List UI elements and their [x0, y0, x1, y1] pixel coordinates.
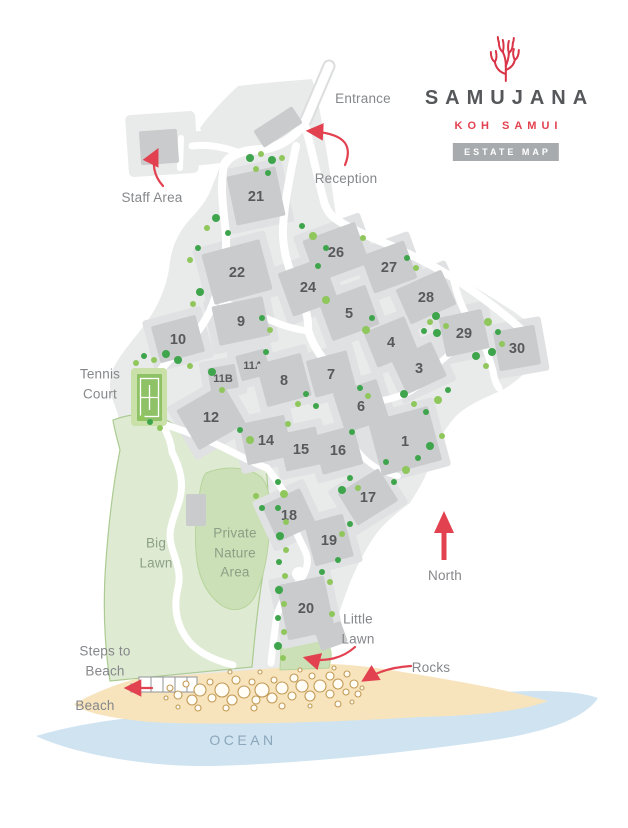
tree-icon — [402, 466, 410, 474]
tree-icon — [383, 459, 389, 465]
villa-number: 16 — [330, 443, 346, 459]
rock-icon — [238, 686, 250, 698]
tree-icon — [276, 532, 284, 540]
tree-icon — [483, 363, 489, 369]
villa-number: 28 — [418, 290, 434, 306]
tree-icon — [280, 655, 286, 661]
tree-icon — [285, 421, 291, 427]
tree-icon — [362, 326, 370, 334]
tree-icon — [263, 349, 269, 355]
rock-icon — [344, 671, 350, 677]
rock-icon — [350, 700, 354, 704]
rock-icon — [223, 705, 229, 711]
tree-icon — [415, 455, 421, 461]
tree-icon — [335, 557, 341, 563]
label-rocks: Rocks — [412, 658, 451, 678]
tree-icon — [276, 559, 282, 565]
tree-icon — [259, 505, 265, 511]
tree-icon — [349, 429, 355, 435]
rock-icon — [195, 705, 201, 711]
label-north: North — [428, 566, 462, 586]
rock-icon — [290, 674, 298, 682]
tree-icon — [246, 154, 254, 162]
tree-icon — [187, 363, 193, 369]
tree-icon — [208, 368, 216, 376]
rock-icon — [176, 705, 180, 709]
rock-icon — [298, 668, 302, 672]
rock-icon — [326, 690, 334, 698]
label-big-lawn: Big Lawn — [136, 533, 176, 572]
rock-icon — [308, 704, 312, 708]
tree-icon — [495, 329, 501, 335]
rock-icon — [360, 686, 364, 690]
tree-icon — [265, 170, 271, 176]
tree-icon — [139, 415, 145, 421]
villa-number: 4 — [387, 335, 395, 351]
tree-icon — [347, 475, 353, 481]
tree-icon — [432, 312, 440, 320]
tree-icon — [445, 387, 451, 393]
tree-icon — [329, 611, 335, 617]
tree-icon — [190, 301, 196, 307]
rock-icon — [314, 680, 326, 692]
rock-icon — [271, 677, 277, 683]
tree-icon — [282, 573, 288, 579]
label-ocean: OCEAN — [209, 730, 276, 750]
tree-icon — [279, 155, 285, 161]
tree-icon — [133, 360, 139, 366]
tree-icon — [147, 419, 153, 425]
tree-icon — [421, 328, 427, 334]
rock-icon — [296, 680, 308, 692]
label-reception: Reception — [315, 169, 378, 189]
tree-icon — [141, 353, 147, 359]
tree-icon — [187, 257, 193, 263]
tree-icon — [404, 255, 410, 261]
rock-icon — [194, 684, 206, 696]
tree-icon — [281, 601, 287, 607]
rock-icon — [355, 691, 361, 697]
label-staff-area: Staff Area — [121, 188, 182, 208]
villa-number: 9 — [237, 314, 245, 330]
tree-icon — [151, 357, 157, 363]
tree-icon — [338, 486, 346, 494]
logo: SAMUJANA KOH SAMUI ESTATE MAP — [418, 34, 594, 161]
villa-number: 21 — [248, 189, 264, 205]
rock-icon — [255, 683, 269, 697]
label-little-lawn: Little Lawn — [336, 609, 380, 648]
tree-icon — [413, 265, 419, 271]
rock-icon — [183, 681, 189, 687]
villa-number: 29 — [456, 326, 472, 342]
villa-number: 15 — [293, 442, 309, 458]
tree-icon — [443, 323, 449, 329]
label-steps-to-beach: Steps to Beach — [74, 641, 136, 680]
tree-icon — [246, 436, 254, 444]
staff-building — [139, 129, 179, 166]
villa-number: 20 — [298, 601, 314, 617]
rock-icon — [227, 695, 237, 705]
tree-icon — [295, 401, 301, 407]
tree-icon — [275, 479, 281, 485]
tree-icon — [391, 479, 397, 485]
tree-icon — [281, 629, 287, 635]
tree-icon — [267, 327, 273, 333]
rock-icon — [309, 673, 315, 679]
tree-icon — [327, 579, 333, 585]
tree-icon — [360, 235, 366, 241]
villa-number: 24 — [300, 280, 316, 296]
villa-number: 26 — [328, 245, 344, 261]
tree-icon — [339, 531, 345, 537]
tree-icon — [439, 433, 445, 439]
rock-icon — [326, 672, 334, 680]
rock-icon — [350, 680, 358, 688]
rock-icon — [276, 682, 288, 694]
tree-icon — [347, 521, 353, 527]
rock-icon — [267, 693, 277, 703]
estate-map-badge: ESTATE MAP — [453, 143, 559, 161]
tree-icon — [196, 288, 204, 296]
tree-icon — [280, 490, 288, 498]
tree-icon — [484, 318, 492, 326]
tree-icon — [157, 425, 163, 431]
tree-icon — [275, 615, 281, 621]
tree-icon — [225, 230, 231, 236]
tree-icon — [411, 401, 417, 407]
north-arrow-head — [434, 511, 454, 533]
tree-icon — [258, 151, 264, 157]
tree-icon — [212, 214, 220, 222]
tree-icon — [322, 296, 330, 304]
rock-icon — [335, 701, 341, 707]
rock-icon — [232, 676, 240, 684]
label-entrance: Entrance — [335, 89, 391, 109]
villa-number: 5 — [345, 306, 353, 322]
rock-icon — [258, 670, 262, 674]
tree-icon — [319, 569, 325, 575]
label-tennis-court: Tennis Court — [75, 364, 125, 403]
villa-number: 1 — [401, 434, 409, 450]
tree-icon — [162, 350, 170, 358]
tree-icon — [299, 223, 305, 229]
rock-icon — [288, 692, 296, 700]
tree-icon — [195, 245, 201, 251]
tree-icon — [268, 156, 276, 164]
rock-icon — [305, 691, 315, 701]
villa-number: 22 — [229, 265, 245, 281]
label-beach: Beach — [75, 696, 114, 716]
tree-icon — [275, 505, 281, 511]
rock-icon — [333, 679, 343, 689]
tree-icon — [499, 341, 505, 347]
tree-icon — [274, 642, 282, 650]
tennis-court — [131, 368, 167, 426]
tree-icon — [283, 547, 289, 553]
tree-icon — [219, 387, 225, 393]
villa-number: 19 — [321, 533, 337, 549]
tree-icon — [259, 315, 265, 321]
tree-icon — [253, 166, 259, 172]
label-private-nature-area: Private Nature Area — [204, 524, 266, 583]
tree-icon — [174, 356, 182, 364]
tree-icon — [488, 348, 496, 356]
rock-icon — [167, 685, 173, 691]
villa-number: 14 — [258, 433, 274, 449]
rock-icon — [208, 694, 216, 702]
rock-icon — [187, 695, 197, 705]
villa-number: 17 — [360, 490, 376, 506]
rock-icon — [207, 679, 213, 685]
rock-icon — [174, 691, 182, 699]
lawn-shed — [186, 494, 206, 526]
estate-map-page: 21222627242859104293011A311B871261415161… — [0, 0, 628, 828]
rock-icon — [215, 683, 229, 697]
tree-icon — [369, 315, 375, 321]
villa-number: 27 — [381, 260, 397, 276]
villa-number: 8 — [280, 373, 288, 389]
tree-icon — [434, 396, 442, 404]
tree-icon — [433, 329, 441, 337]
brand-name: SAMUJANA — [418, 87, 594, 110]
villa-number: 30 — [509, 341, 525, 357]
villa-number: 7 — [327, 367, 335, 383]
villa-number: 12 — [203, 410, 219, 426]
rock-icon — [249, 679, 255, 685]
tree-icon — [237, 427, 243, 433]
tree-icon — [355, 485, 361, 491]
rock-icon — [251, 705, 257, 711]
villa-number: 3 — [415, 361, 423, 377]
rock-icon — [252, 696, 260, 704]
tree-icon — [309, 232, 317, 240]
tree-icon — [253, 493, 259, 499]
tree-icon — [426, 442, 434, 450]
tree-icon — [423, 409, 429, 415]
tree-icon — [365, 393, 371, 399]
tree-icon — [275, 586, 283, 594]
rock-icon — [164, 696, 168, 700]
rock-icon — [279, 703, 285, 709]
tree-icon — [427, 319, 433, 325]
villa-21: 21 — [226, 166, 285, 225]
tree-icon — [472, 352, 480, 360]
rock-icon — [332, 666, 336, 670]
coral-icon — [484, 34, 528, 82]
tree-icon — [283, 519, 289, 525]
villa-number: 6 — [357, 399, 365, 415]
tree-icon — [400, 390, 408, 398]
rock-icon — [343, 689, 349, 695]
tree-icon — [313, 403, 319, 409]
tree-icon — [303, 391, 309, 397]
villa-number: 11B — [213, 373, 233, 385]
rock-icon — [228, 670, 232, 674]
tree-icon — [357, 385, 363, 391]
tree-icon — [323, 245, 329, 251]
villa-number: 10 — [170, 332, 186, 348]
brand-location: KOH SAMUI — [450, 120, 563, 132]
tree-icon — [204, 225, 210, 231]
tree-icon — [315, 263, 321, 269]
